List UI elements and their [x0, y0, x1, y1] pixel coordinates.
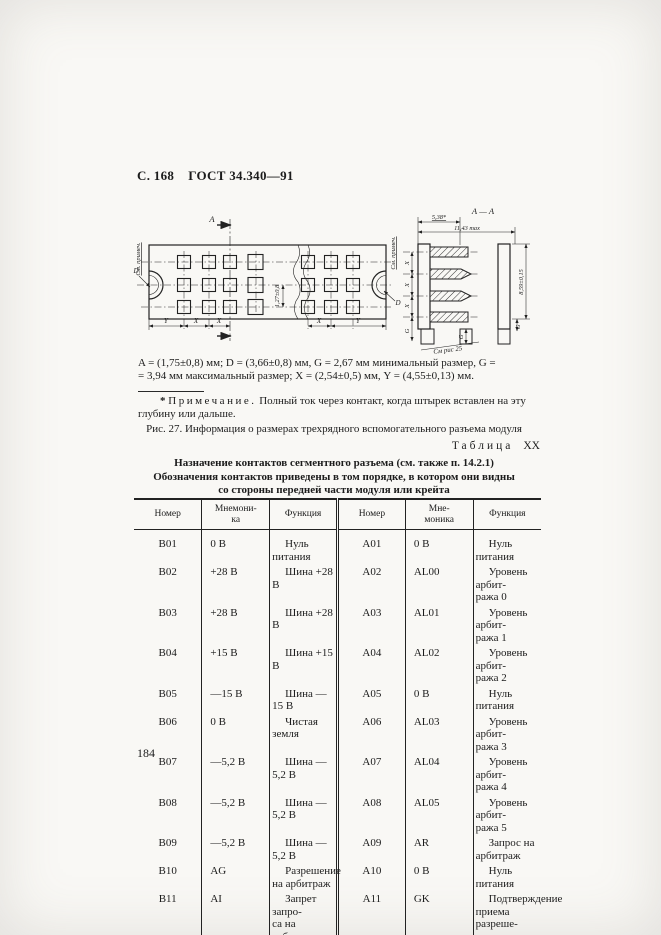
table-cell: B11	[134, 892, 202, 935]
table-cell: AL05	[405, 796, 473, 837]
table-cell: B02	[134, 565, 202, 606]
pitch-dimension-label: 1,27±0,8	[274, 284, 281, 307]
table-title-line1: Назначение контактов сегментного разъема…	[128, 457, 540, 471]
footnote-text: * Примечание. Полный ток через контакт, …	[138, 395, 539, 420]
footnote-asterisk: *	[160, 395, 166, 407]
table-cell: AL00	[405, 565, 473, 606]
table-cell: AG	[202, 864, 270, 892]
table-title-line2: Обозначения контактов приведены в том по…	[128, 471, 540, 485]
dim-y-left: Y	[164, 317, 169, 325]
table-cell: Разрешение на арбитраж	[270, 864, 338, 892]
col-header-mnemonic-b: Мнемони- ка	[202, 499, 270, 530]
notch-diameter-label-left: D	[132, 267, 138, 275]
table-cell: A10	[337, 864, 405, 892]
table-cell: AL03	[405, 715, 473, 756]
page-marker: С. 168	[137, 168, 174, 183]
table-cell: Уровень арбит- ража 4	[473, 755, 541, 796]
table-cell: 0 В	[405, 530, 473, 566]
table-cell: —5,2 В	[202, 836, 270, 864]
footnote-label: Примечание.	[168, 395, 256, 407]
table-cell: A09	[337, 836, 405, 864]
table-cell: B07	[134, 755, 202, 796]
table-title: Назначение контактов сегментного разъема…	[128, 457, 540, 498]
col-header-number-a: Номер	[337, 499, 405, 530]
table-cell: 0 В	[202, 530, 270, 566]
dim-g-right: G	[515, 324, 522, 329]
table-cell: A07	[337, 755, 405, 796]
dim-y-right: Y	[356, 317, 361, 325]
table-cell: Шина —15 В	[270, 687, 338, 715]
table-cell: +28 В	[202, 565, 270, 606]
table-cell: +15 В	[202, 646, 270, 687]
section-label-a: A	[208, 214, 215, 224]
table-cell: Шина +28 В	[270, 565, 338, 606]
dim-g-left: G	[404, 328, 411, 333]
page-number: 184	[137, 746, 155, 761]
standard-number: ГОСТ 34.340—91	[188, 168, 293, 183]
table-label-word: Таблица	[452, 440, 514, 452]
table-cell: Шина —5,2 В	[270, 836, 338, 864]
figure-caption: Рис. 27. Информация о размерах трехрядно…	[128, 423, 540, 435]
dim-max-width: 11,43 max	[454, 225, 480, 232]
table-cell: AR	[405, 836, 473, 864]
table-row: B10AGРазрешение на арбитражA100 ВНуль пи…	[134, 864, 541, 892]
dim-g-middle: G	[458, 334, 465, 339]
table-cell: Запрет запро- са на арбитраж	[270, 892, 338, 935]
table-cell: Уровень арбит- ража 1	[473, 606, 541, 647]
col-header-function-a: Функция	[473, 499, 541, 530]
dim-x-left2: X	[216, 317, 222, 325]
table-label: ТаблицаXX	[128, 440, 540, 452]
table-cell: A08	[337, 796, 405, 837]
table-cell: +28 В	[202, 606, 270, 647]
table-cell: Шина +28 В	[270, 606, 338, 647]
col-header-function-b: Функция	[270, 499, 338, 530]
table-cell: —15 В	[202, 687, 270, 715]
table-row: B02+28 ВШина +28 ВA02AL00Уровень арбит- …	[134, 565, 541, 606]
table-cell: B03	[134, 606, 202, 647]
table-cell: B10	[134, 864, 202, 892]
table-cell: A01	[337, 530, 405, 566]
dim-x-left1: X	[193, 317, 199, 325]
dim-x-section3: X	[404, 303, 411, 309]
table-row: B07—5,2 ВШина —5,2 ВA07AL04Уровень арбит…	[134, 755, 541, 796]
dim-x-section2: X	[404, 282, 411, 288]
table-cell: Уровень арбит- ража 2	[473, 646, 541, 687]
table-cell: B09	[134, 836, 202, 864]
dim-height-section: 8,59±0,15	[518, 269, 525, 295]
table-cell: B01	[134, 530, 202, 566]
table-row: B04+15 ВШина +15 ВA04AL02Уровень арбит- …	[134, 646, 541, 687]
dim-x-section1: X	[404, 260, 411, 266]
table-cell: AI	[202, 892, 270, 935]
pin-assignment-table: Номер Мнемони- ка Функция Номер Мне- мон…	[134, 498, 541, 935]
dim-insertion-depth: 5,38*	[432, 214, 447, 221]
table-title-line3: со стороны передней части модуля или кре…	[128, 484, 540, 498]
table-cell: Нуль питания	[270, 530, 338, 566]
table-cell: AL01	[405, 606, 473, 647]
table-cell: B08	[134, 796, 202, 837]
dimension-values-text: A = (1,75±0,8) мм; D = (3,66±0,8) мм, G …	[138, 357, 539, 382]
table-cell: A03	[337, 606, 405, 647]
notch-diameter-label-right: D	[394, 299, 400, 307]
table-cell: Запрос на арбитраж	[473, 836, 541, 864]
table-cell: Шина —5,2 В	[270, 796, 338, 837]
table-label-number: XX	[523, 440, 540, 452]
table-cell: A06	[337, 715, 405, 756]
section-view-title: А — А	[471, 206, 495, 216]
table-cell: GK	[405, 892, 473, 935]
table-cell: AL04	[405, 755, 473, 796]
page-header: С. 168ГОСТ 34.340—91	[137, 168, 294, 184]
footnote-divider	[138, 391, 204, 392]
table-cell: A11	[337, 892, 405, 935]
table-row: B060 ВЧистая земляA06AL03Уровень арбит- …	[134, 715, 541, 756]
table-row: B09—5,2 ВШина —5,2 ВA09ARЗапрос на арбит…	[134, 836, 541, 864]
table-cell: Чистая земля	[270, 715, 338, 756]
table-cell: Уровень арбит- ража 3	[473, 715, 541, 756]
table-cell: Подтверждение приема разреше- ния на арб…	[473, 892, 541, 935]
table-cell: —5,2 В	[202, 796, 270, 837]
table-row: B08—5,2 ВШина —5,2 ВA08AL05Уровень арбит…	[134, 796, 541, 837]
table-cell: 0 В	[202, 715, 270, 756]
table-row: B11AIЗапрет запро- са на арбитражA11GKПо…	[134, 892, 541, 935]
figure-27-drawing: A См. примеч. См. примеч. D D 1,27±0,8 Y…	[131, 201, 533, 361]
connector-drawing-svg: A См. примеч. См. примеч. D D 1,27±0,8 Y…	[131, 201, 533, 361]
table-cell: 0 В	[405, 864, 473, 892]
col-header-mnemonic-a: Мне- моника	[405, 499, 473, 530]
table-cell: A02	[337, 565, 405, 606]
table-cell: Нуль питания	[473, 687, 541, 715]
table-cell: A04	[337, 646, 405, 687]
see-note-label-right: См. примеч.	[390, 236, 397, 270]
table-cell: Шина —5,2 В	[270, 755, 338, 796]
table-cell: A05	[337, 687, 405, 715]
table-row: B010 ВНуль питанияA010 ВНуль питания	[134, 530, 541, 566]
dim-x-right: X	[316, 317, 322, 325]
table-cell: B05	[134, 687, 202, 715]
table-cell: Уровень арбит- ража 5	[473, 796, 541, 837]
table-row: B05—15 ВШина —15 ВA050 ВНуль питания	[134, 687, 541, 715]
col-header-number-b: Номер	[134, 499, 202, 530]
table-cell: Нуль питания	[473, 530, 541, 566]
table-cell: Уровень арбит- ража 0	[473, 565, 541, 606]
pin-table-header: Номер Мнемони- ка Функция Номер Мне- мон…	[134, 499, 541, 530]
table-row: B03+28 ВШина +28 ВA03AL01Уровень арбит- …	[134, 606, 541, 647]
section-view	[403, 217, 530, 350]
table-cell: —5,2 В	[202, 755, 270, 796]
table-cell: B04	[134, 646, 202, 687]
pin-table-body: B010 ВНуль питанияA010 ВНуль питанияB02+…	[134, 530, 541, 935]
see-fig-25-label: См рис 25	[433, 345, 463, 356]
document-page: С. 168ГОСТ 34.340—91	[0, 0, 661, 935]
table-cell: Нуль питания	[473, 864, 541, 892]
table-cell: AL02	[405, 646, 473, 687]
table-cell: Шина +15 В	[270, 646, 338, 687]
table-cell: 0 В	[405, 687, 473, 715]
